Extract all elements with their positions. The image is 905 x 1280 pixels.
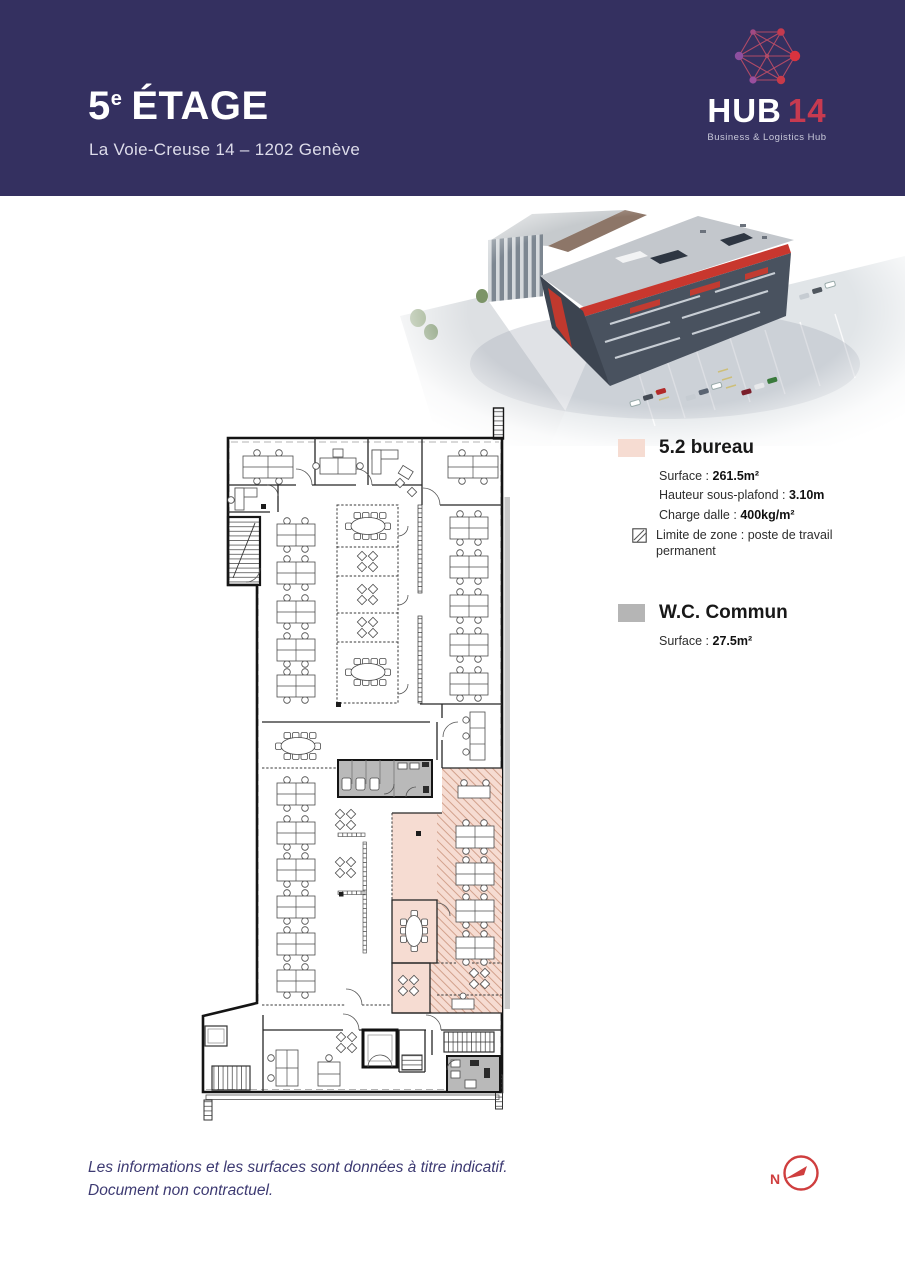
bureau-title: 5.2 bureau xyxy=(659,437,754,459)
legend: 5.2 bureau Surface : 261.5m² Hauteur sou… xyxy=(618,437,900,651)
wc-title: W.C. Commun xyxy=(659,602,788,624)
hub14-wordmark: HUB14 xyxy=(688,94,846,127)
header-band: 5eÉTAGE La Voie-Creuse 14 – 1202 Genève … xyxy=(0,0,905,196)
page-title: 5eÉTAGE xyxy=(88,84,269,129)
legend-wc: W.C. Commun Surface : 27.5m² xyxy=(618,602,900,651)
svg-text:N: N xyxy=(770,1171,780,1187)
legend-bureau: 5.2 bureau Surface : 261.5m² Hauteur sou… xyxy=(618,437,900,560)
hub14-hexagon-network-icon xyxy=(731,24,803,88)
floorplan-document-page: 5eÉTAGE La Voie-Creuse 14 – 1202 Genève … xyxy=(0,0,905,1280)
bureau-color-swatch xyxy=(618,439,645,457)
wc-details: Surface : 27.5m² xyxy=(659,632,900,651)
hub14-tagline: Business & Logistics Hub xyxy=(688,132,846,143)
wc-color-swatch xyxy=(618,604,645,622)
zone-limit-hatch-icon xyxy=(632,528,647,543)
north-compass-icon: N xyxy=(758,1134,842,1206)
hub14-logo: HUB14 Business & Logistics Hub xyxy=(688,24,846,143)
floor-plan: .furn{fill:#fff;stroke:#4c4c4c;stroke-wi… xyxy=(193,403,515,1127)
page-subtitle: La Voie-Creuse 14 – 1202 Genève xyxy=(89,140,360,160)
bureau-details: Surface : 261.5m² Hauteur sous-plafond :… xyxy=(659,467,900,525)
disclaimer-text: Les informations et les surfaces sont do… xyxy=(88,1156,508,1203)
zone-limit-note: Limite de zone : poste de travail perman… xyxy=(656,527,856,560)
